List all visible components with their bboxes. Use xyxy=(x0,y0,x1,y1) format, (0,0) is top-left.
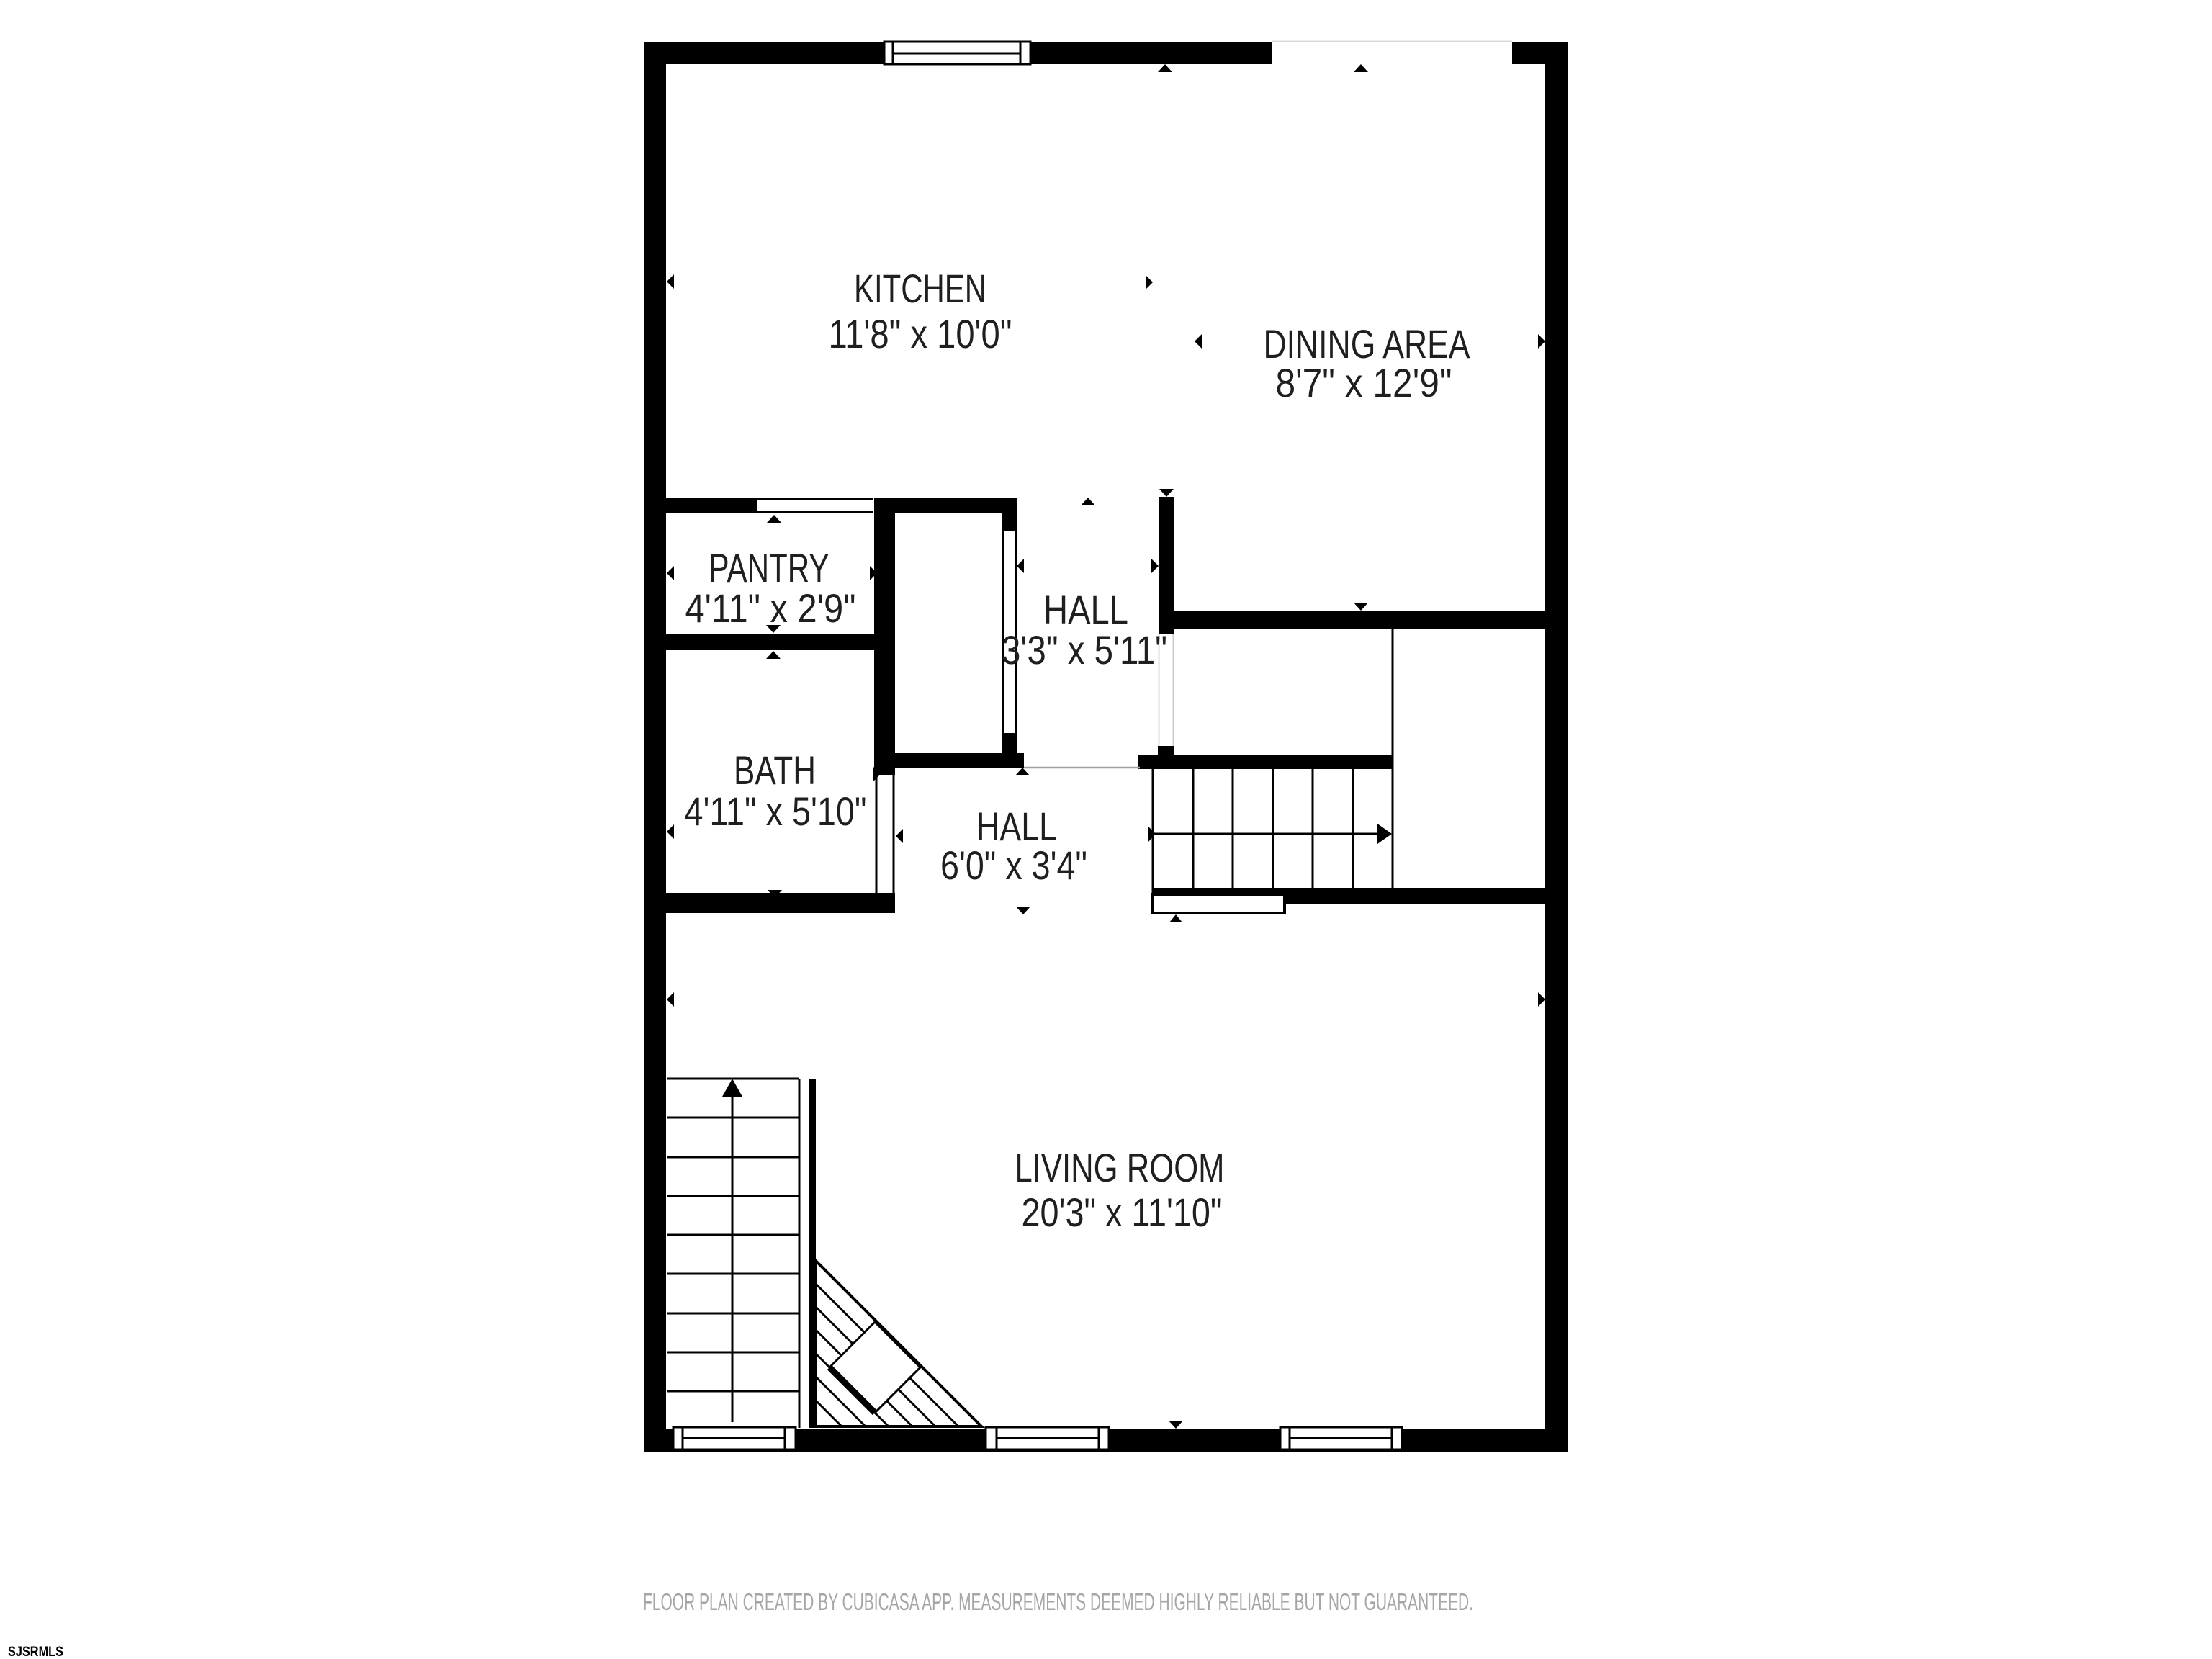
svg-text:SJSRMLS: SJSRMLS xyxy=(8,1645,63,1659)
svg-text:6'0" x 3'4": 6'0" x 3'4" xyxy=(940,842,1087,888)
svg-text:4'11" x 2'9": 4'11" x 2'9" xyxy=(685,585,856,631)
svg-text:20'3" x 11'10": 20'3" x 11'10" xyxy=(1022,1190,1223,1235)
svg-text:8'7" x 12'9": 8'7" x 12'9" xyxy=(1276,360,1452,405)
svg-text:BATH: BATH xyxy=(734,747,816,793)
svg-text:KITCHEN: KITCHEN xyxy=(854,266,986,311)
svg-text:FLOOR PLAN CREATED BY CUBICASA: FLOOR PLAN CREATED BY CUBICASA APP. MEAS… xyxy=(643,1588,1473,1615)
svg-text:LIVING ROOM: LIVING ROOM xyxy=(1015,1145,1225,1190)
svg-text:PANTRY: PANTRY xyxy=(709,545,829,590)
svg-text:3'3" x 5'11": 3'3" x 5'11" xyxy=(1002,627,1167,673)
svg-text:4'11" x 5'10": 4'11" x 5'10" xyxy=(685,788,867,834)
svg-text:HALL: HALL xyxy=(1043,587,1128,632)
svg-text:11'8" x 10'0": 11'8" x 10'0" xyxy=(829,311,1012,356)
